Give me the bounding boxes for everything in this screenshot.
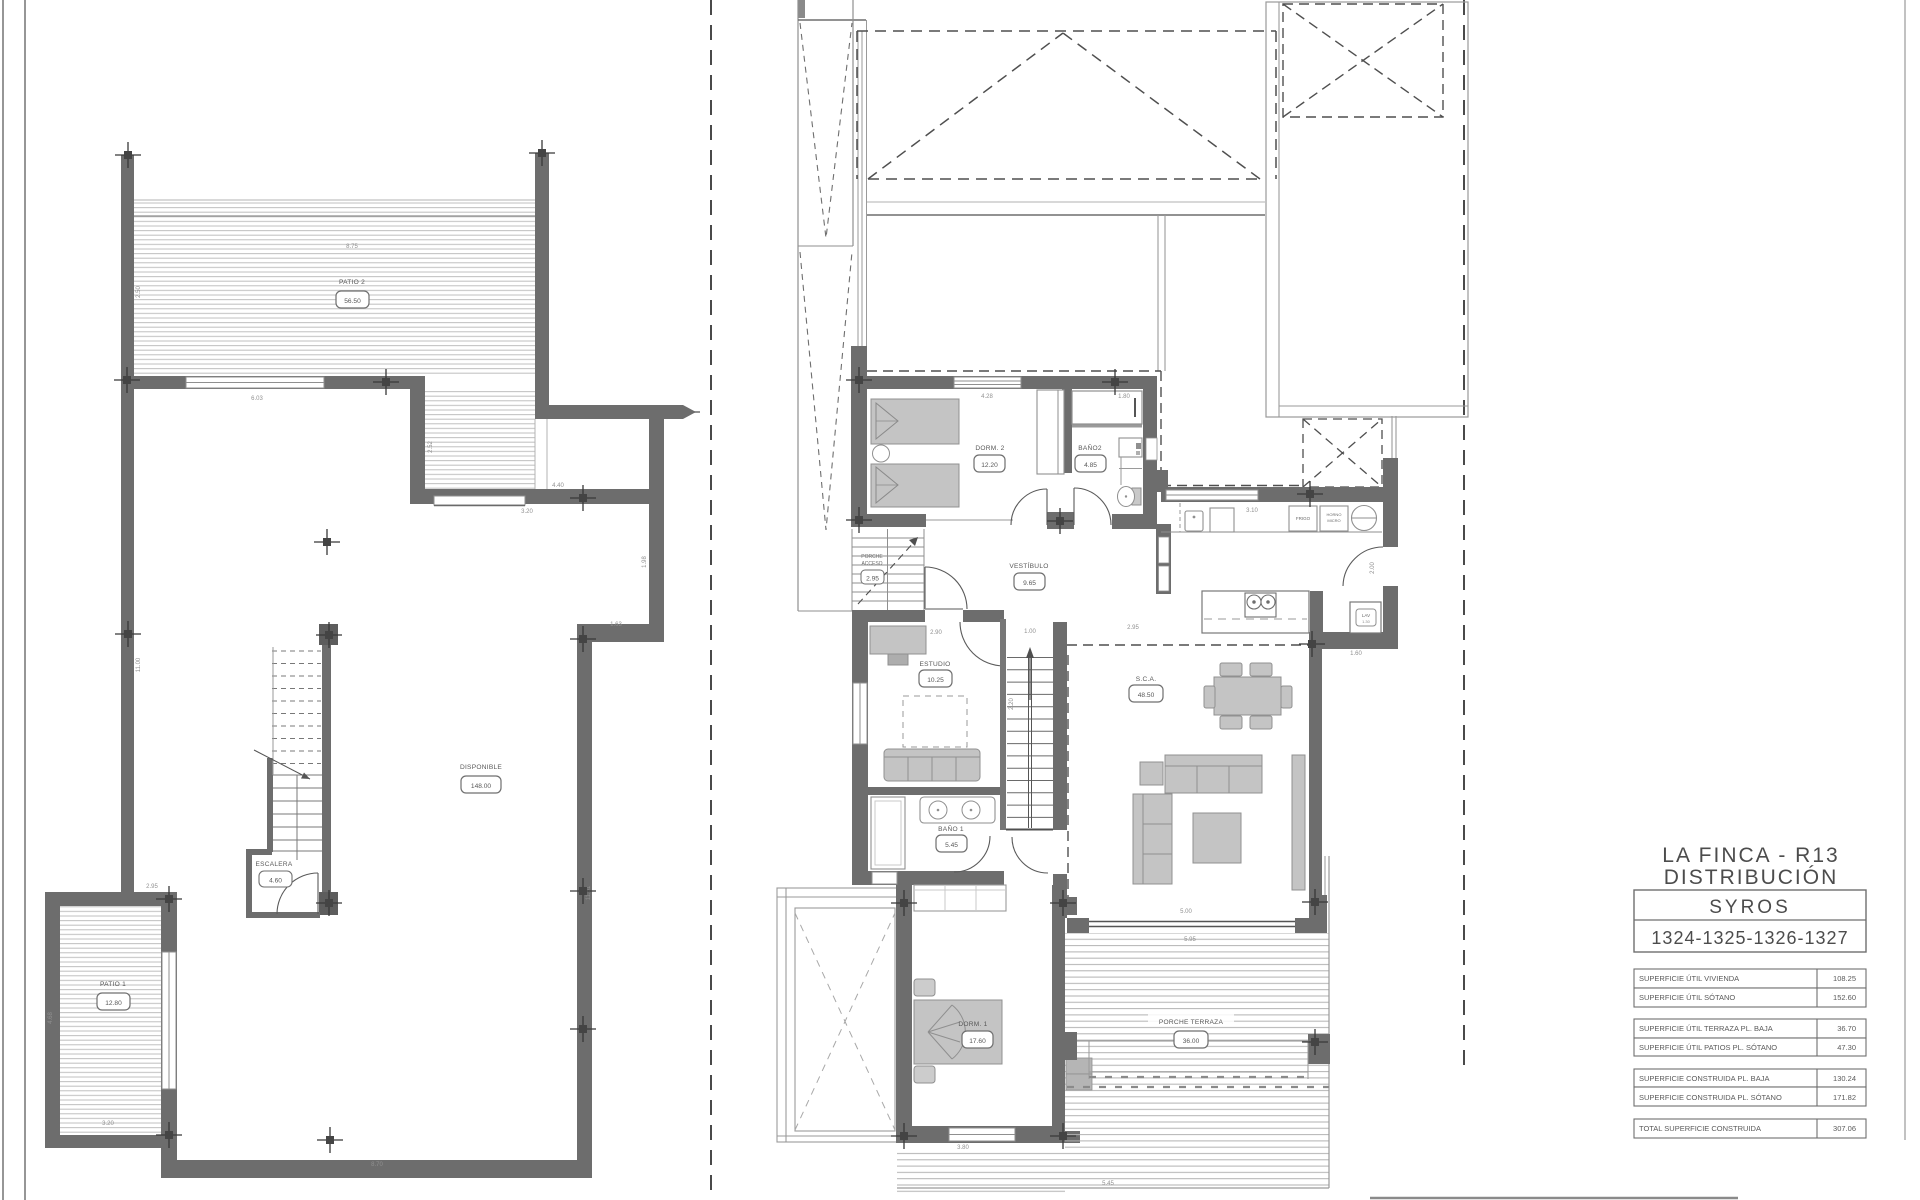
svg-text:SUPERFICIE CONSTRUIDA PL. SÓTA: SUPERFICIE CONSTRUIDA PL. SÓTANO (1639, 1093, 1782, 1102)
svg-text:1.63: 1.63 (610, 622, 622, 628)
svg-text:3.20: 3.20 (521, 509, 533, 515)
svg-text:2.52: 2.52 (428, 441, 434, 453)
svg-text:9.65: 9.65 (1023, 580, 1036, 587)
svg-text:152.60: 152.60 (1833, 993, 1856, 1002)
svg-text:3.20: 3.20 (102, 1121, 114, 1127)
svg-text:108.25: 108.25 (1833, 974, 1856, 983)
svg-text:11.00: 11.00 (136, 657, 142, 672)
svg-text:1324-1325-1326-1327: 1324-1325-1326-1327 (1651, 928, 1848, 948)
svg-text:SUPERFICIE ÚTIL VIVIENDA: SUPERFICIE ÚTIL VIVIENDA (1639, 974, 1739, 983)
svg-text:HORNO: HORNO (1327, 512, 1342, 517)
svg-text:DORM. 2: DORM. 2 (975, 445, 1004, 452)
svg-text:S.C.A.: S.C.A. (1136, 676, 1157, 683)
svg-text:1.60: 1.60 (1350, 651, 1362, 657)
svg-text:4.68: 4.68 (48, 1012, 54, 1024)
svg-text:SUPERFICIE CONSTRUIDA PL. BAJA: SUPERFICIE CONSTRUIDA PL. BAJA (1639, 1074, 1769, 1083)
svg-text:8.70: 8.70 (371, 1162, 383, 1168)
svg-text:2.20: 2.20 (1009, 698, 1015, 710)
svg-text:2.95: 2.95 (866, 576, 879, 583)
svg-text:PORCHE: PORCHE (861, 554, 883, 560)
svg-text:ACCESO: ACCESO (861, 561, 882, 567)
svg-text:TOTAL SUPERFICIE CONSTRUIDA: TOTAL SUPERFICIE CONSTRUIDA (1639, 1124, 1761, 1133)
svg-text:1.98: 1.98 (642, 556, 648, 568)
svg-text:PORCHE TERRAZA: PORCHE TERRAZA (1159, 1019, 1224, 1026)
svg-text:SUPERFICIE ÚTIL SÓTANO: SUPERFICIE ÚTIL SÓTANO (1639, 993, 1735, 1002)
svg-text:DISPONIBLE: DISPONIBLE (460, 764, 502, 771)
svg-text:4.85: 4.85 (1084, 462, 1097, 469)
svg-text:56.50: 56.50 (344, 298, 361, 305)
svg-text:10.25: 10.25 (927, 677, 944, 684)
svg-text:2.95: 2.95 (146, 884, 158, 890)
svg-text:DORM. 1: DORM. 1 (958, 1021, 987, 1028)
svg-text:8.75: 8.75 (346, 244, 358, 250)
svg-text:PATIO 1: PATIO 1 (100, 981, 126, 988)
svg-text:1.00: 1.00 (1024, 629, 1036, 635)
svg-text:3.80: 3.80 (957, 1145, 969, 1151)
svg-text:MICRO: MICRO (1327, 518, 1340, 523)
svg-text:130.24: 130.24 (1833, 1074, 1856, 1083)
svg-text:1.80: 1.80 (1118, 394, 1130, 400)
svg-text:PATIO 2: PATIO 2 (339, 279, 365, 286)
svg-text:6.03: 6.03 (251, 396, 263, 402)
svg-text:ESTUDIO: ESTUDIO (919, 661, 950, 668)
svg-text:LAV: LAV (1362, 613, 1370, 618)
svg-text:VESTÍBULO: VESTÍBULO (1009, 561, 1048, 570)
svg-text:36.00: 36.00 (1183, 1038, 1200, 1045)
svg-text:5.00: 5.00 (1180, 909, 1192, 915)
svg-text:47.30: 47.30 (1837, 1043, 1856, 1052)
svg-text:36.70: 36.70 (1837, 1024, 1856, 1033)
svg-text:12.80: 12.80 (105, 1000, 122, 1007)
svg-text:SYROS: SYROS (1709, 897, 1791, 918)
svg-text:5.45: 5.45 (945, 842, 958, 849)
svg-text:FRIGO: FRIGO (1296, 516, 1311, 521)
svg-text:BAÑO 1: BAÑO 1 (938, 824, 964, 833)
svg-text:48.50: 48.50 (1138, 692, 1155, 699)
svg-text:4.60: 4.60 (269, 878, 282, 885)
svg-text:5.45: 5.45 (1102, 1181, 1114, 1187)
svg-text:3.10: 3.10 (1246, 508, 1258, 514)
svg-text:SUPERFICIE ÚTIL TERRAZA PL. BA: SUPERFICIE ÚTIL TERRAZA PL. BAJA (1639, 1024, 1773, 1033)
svg-text:5.95: 5.95 (1184, 937, 1196, 943)
svg-text:2.50: 2.50 (136, 286, 142, 298)
svg-text:17.60: 17.60 (969, 1038, 986, 1045)
svg-text:BAÑO2: BAÑO2 (1078, 443, 1102, 452)
svg-text:SUPERFICIE ÚTIL PATIOS PL. SÓT: SUPERFICIE ÚTIL PATIOS PL. SÓTANO (1639, 1043, 1777, 1052)
svg-text:148.00: 148.00 (471, 783, 492, 790)
svg-text:307.06: 307.06 (1833, 1124, 1856, 1133)
svg-text:171.82: 171.82 (1833, 1093, 1856, 1102)
svg-text:12.20: 12.20 (981, 462, 998, 469)
svg-text:4.28: 4.28 (981, 394, 993, 400)
svg-text:ESCALERA: ESCALERA (255, 861, 292, 868)
svg-text:2.00: 2.00 (1370, 562, 1376, 574)
svg-text:2.95: 2.95 (1127, 625, 1139, 631)
svg-text:1.30: 1.30 (1362, 619, 1371, 624)
svg-text:2.90: 2.90 (930, 630, 942, 636)
svg-text:DISTRIBUCIÓN: DISTRIBUCIÓN (1664, 866, 1839, 889)
svg-text:LA FINCA - R13: LA FINCA - R13 (1662, 844, 1839, 867)
svg-text:4.40: 4.40 (552, 483, 564, 489)
